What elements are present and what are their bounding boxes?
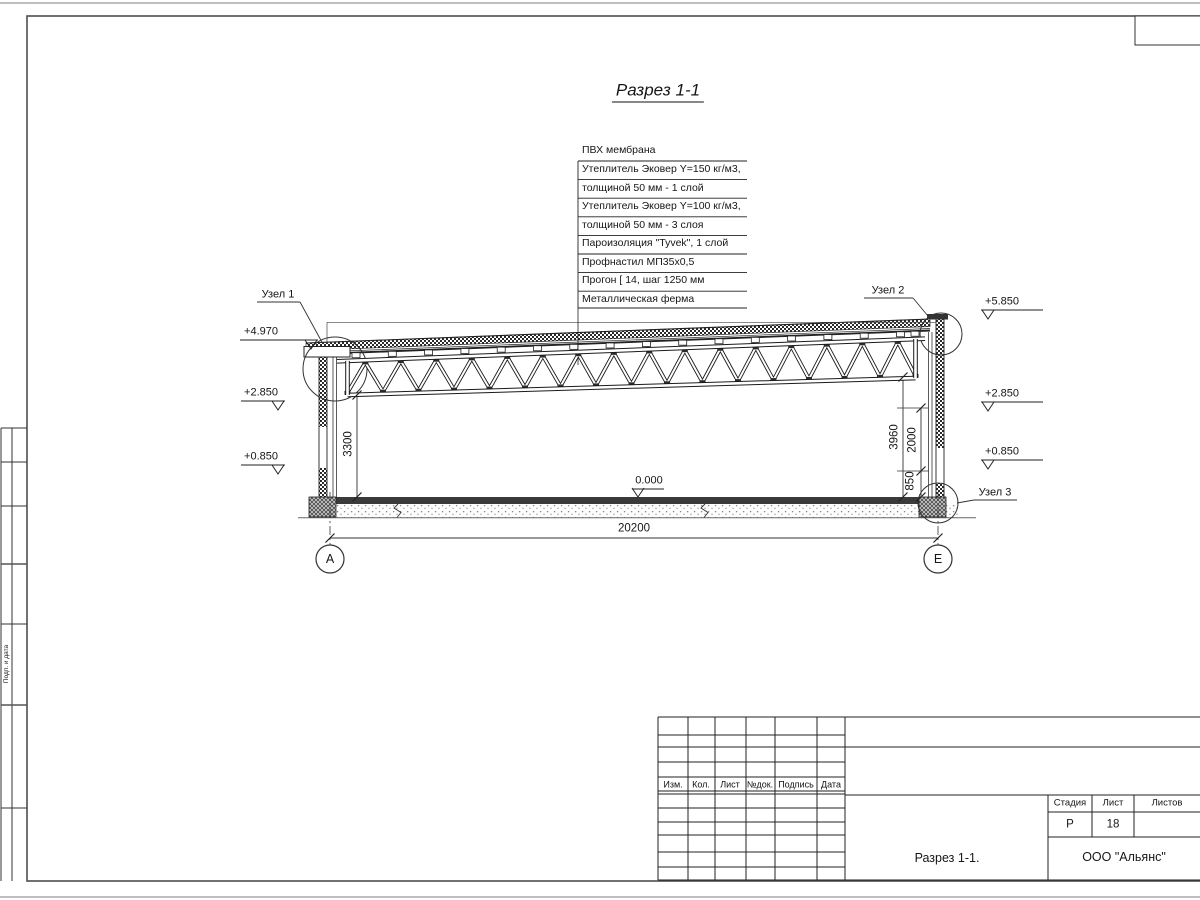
tb-kol: Кол. xyxy=(692,781,710,790)
level-left-2850: +2.850 xyxy=(244,388,278,399)
tb-stage-value: Р xyxy=(1066,819,1074,831)
tb-list: Лист xyxy=(720,781,740,790)
level-left-4970: +4.970 xyxy=(244,327,278,338)
foundation-left xyxy=(309,497,336,517)
axis-label-a: А xyxy=(326,553,334,566)
layer-pvc-membrane: ПВХ мембрана xyxy=(582,145,656,156)
layer-vapor-barrier: Пароизоляция "Tyvek", 1 слой xyxy=(582,238,728,249)
dim-right-850: 850 xyxy=(905,471,917,490)
level-right-5850: +5.850 xyxy=(985,297,1019,308)
tb-data: Дата xyxy=(821,781,841,790)
tb-podpis: Подпись xyxy=(778,781,814,790)
tb-izm: Изм. xyxy=(663,781,682,790)
left-wall xyxy=(319,345,327,497)
node-label-2: Узел 2 xyxy=(872,286,905,297)
layer-thickness-3: толщиной 50 мм - 3 слоя xyxy=(582,220,704,231)
layer-purlin: Прогон [ 14, шаг 1250 мм xyxy=(582,275,704,286)
margin-vertical-label: Подп. и дата xyxy=(4,645,11,683)
layer-thickness-1: толщиной 50 мм - 1 слой xyxy=(582,183,704,194)
level-right-2850: +2.850 xyxy=(985,389,1019,400)
floor-slab xyxy=(298,497,976,518)
axis-label-e: Е xyxy=(934,553,942,566)
level-left-0850: +0.850 xyxy=(244,452,278,463)
drawing-linework xyxy=(0,0,1200,900)
foundation-right xyxy=(919,497,946,517)
parapet-cap xyxy=(927,314,948,320)
tb-sheet-value: 18 xyxy=(1107,819,1120,831)
dimension-lines xyxy=(330,377,938,545)
dim-right-2000: 2000 xyxy=(907,427,919,453)
tb-company: ООО "Альянс" xyxy=(1082,851,1166,864)
tb-sheet-label: Лист xyxy=(1103,798,1124,808)
dim-left-3300: 3300 xyxy=(343,431,355,457)
dim-right-3960: 3960 xyxy=(889,424,901,450)
sheet-frame xyxy=(0,3,1200,897)
layer-profiled-sheet: Профнастил МП35х0,5 xyxy=(582,257,694,268)
node-label-1: Узел 1 xyxy=(262,290,295,301)
layer-insulation-150: Утеплитель Эковер Y=150 кг/м3, xyxy=(582,164,741,175)
level-right-0850: +0.850 xyxy=(985,447,1019,458)
tb-ndok: №док. xyxy=(747,781,773,790)
tb-sheets-label: Листов xyxy=(1152,798,1183,808)
layer-steel-truss: Металлическая ферма xyxy=(582,294,694,305)
layer-insulation-100: Утеплитель Эковер Y=100 кг/м3, xyxy=(582,201,741,212)
drawing-sheet: Разрез 1-1 ПВХ мембрана Утеплитель Экове… xyxy=(0,0,1200,900)
node-label-3: Узел 3 xyxy=(979,488,1012,499)
dim-span-20200: 20200 xyxy=(618,523,650,535)
tb-stage-label: Стадия xyxy=(1054,798,1086,808)
level-floor-0000: 0.000 xyxy=(635,476,663,487)
tb-caption: Разрез 1-1. xyxy=(915,852,980,865)
drawing-title: Разрез 1-1 xyxy=(612,82,704,103)
